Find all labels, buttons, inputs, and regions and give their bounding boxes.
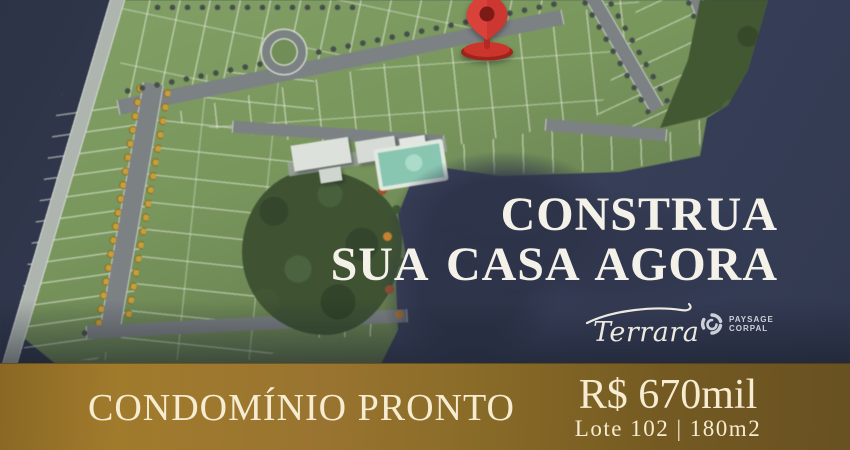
headline: CONSTRUA SUA CASA AGORA	[331, 190, 778, 290]
headline-line2: SUA CASA AGORA	[331, 240, 778, 290]
status-label: CONDOMÍNIO PRONTO	[88, 386, 515, 430]
roundabout	[262, 30, 306, 74]
terrara-wordmark: Terrara	[593, 317, 699, 348]
trees-row	[150, 1, 365, 10]
price: R$ 670mil	[540, 374, 796, 416]
real-estate-flyer: CONSTRUA SUA CASA AGORA Terrara PAYSAGE …	[0, 0, 850, 450]
paysage-corpal-logo: PAYSAGE CORPAL	[700, 312, 774, 336]
offer-details: R$ 670mil Lote 102 | 180m2	[540, 374, 796, 442]
paysage-label: PAYSAGE	[729, 315, 774, 324]
site-plan	[0, 0, 850, 364]
lot-info: Lote 102 | 180m2	[540, 416, 796, 442]
headline-line1: CONSTRUA	[331, 190, 778, 240]
clubhouse-building	[319, 166, 343, 183]
corpal-label: CORPAL	[729, 324, 774, 333]
location-pin-icon	[456, 0, 520, 62]
paysage-swirl-icon	[700, 312, 724, 336]
swimming-pool	[378, 143, 445, 186]
masterplan-map	[0, 0, 850, 364]
offer-bar: CONDOMÍNIO PRONTO R$ 670mil Lote 102 | 1…	[0, 363, 850, 450]
terrara-logo: Terrara	[583, 296, 708, 350]
